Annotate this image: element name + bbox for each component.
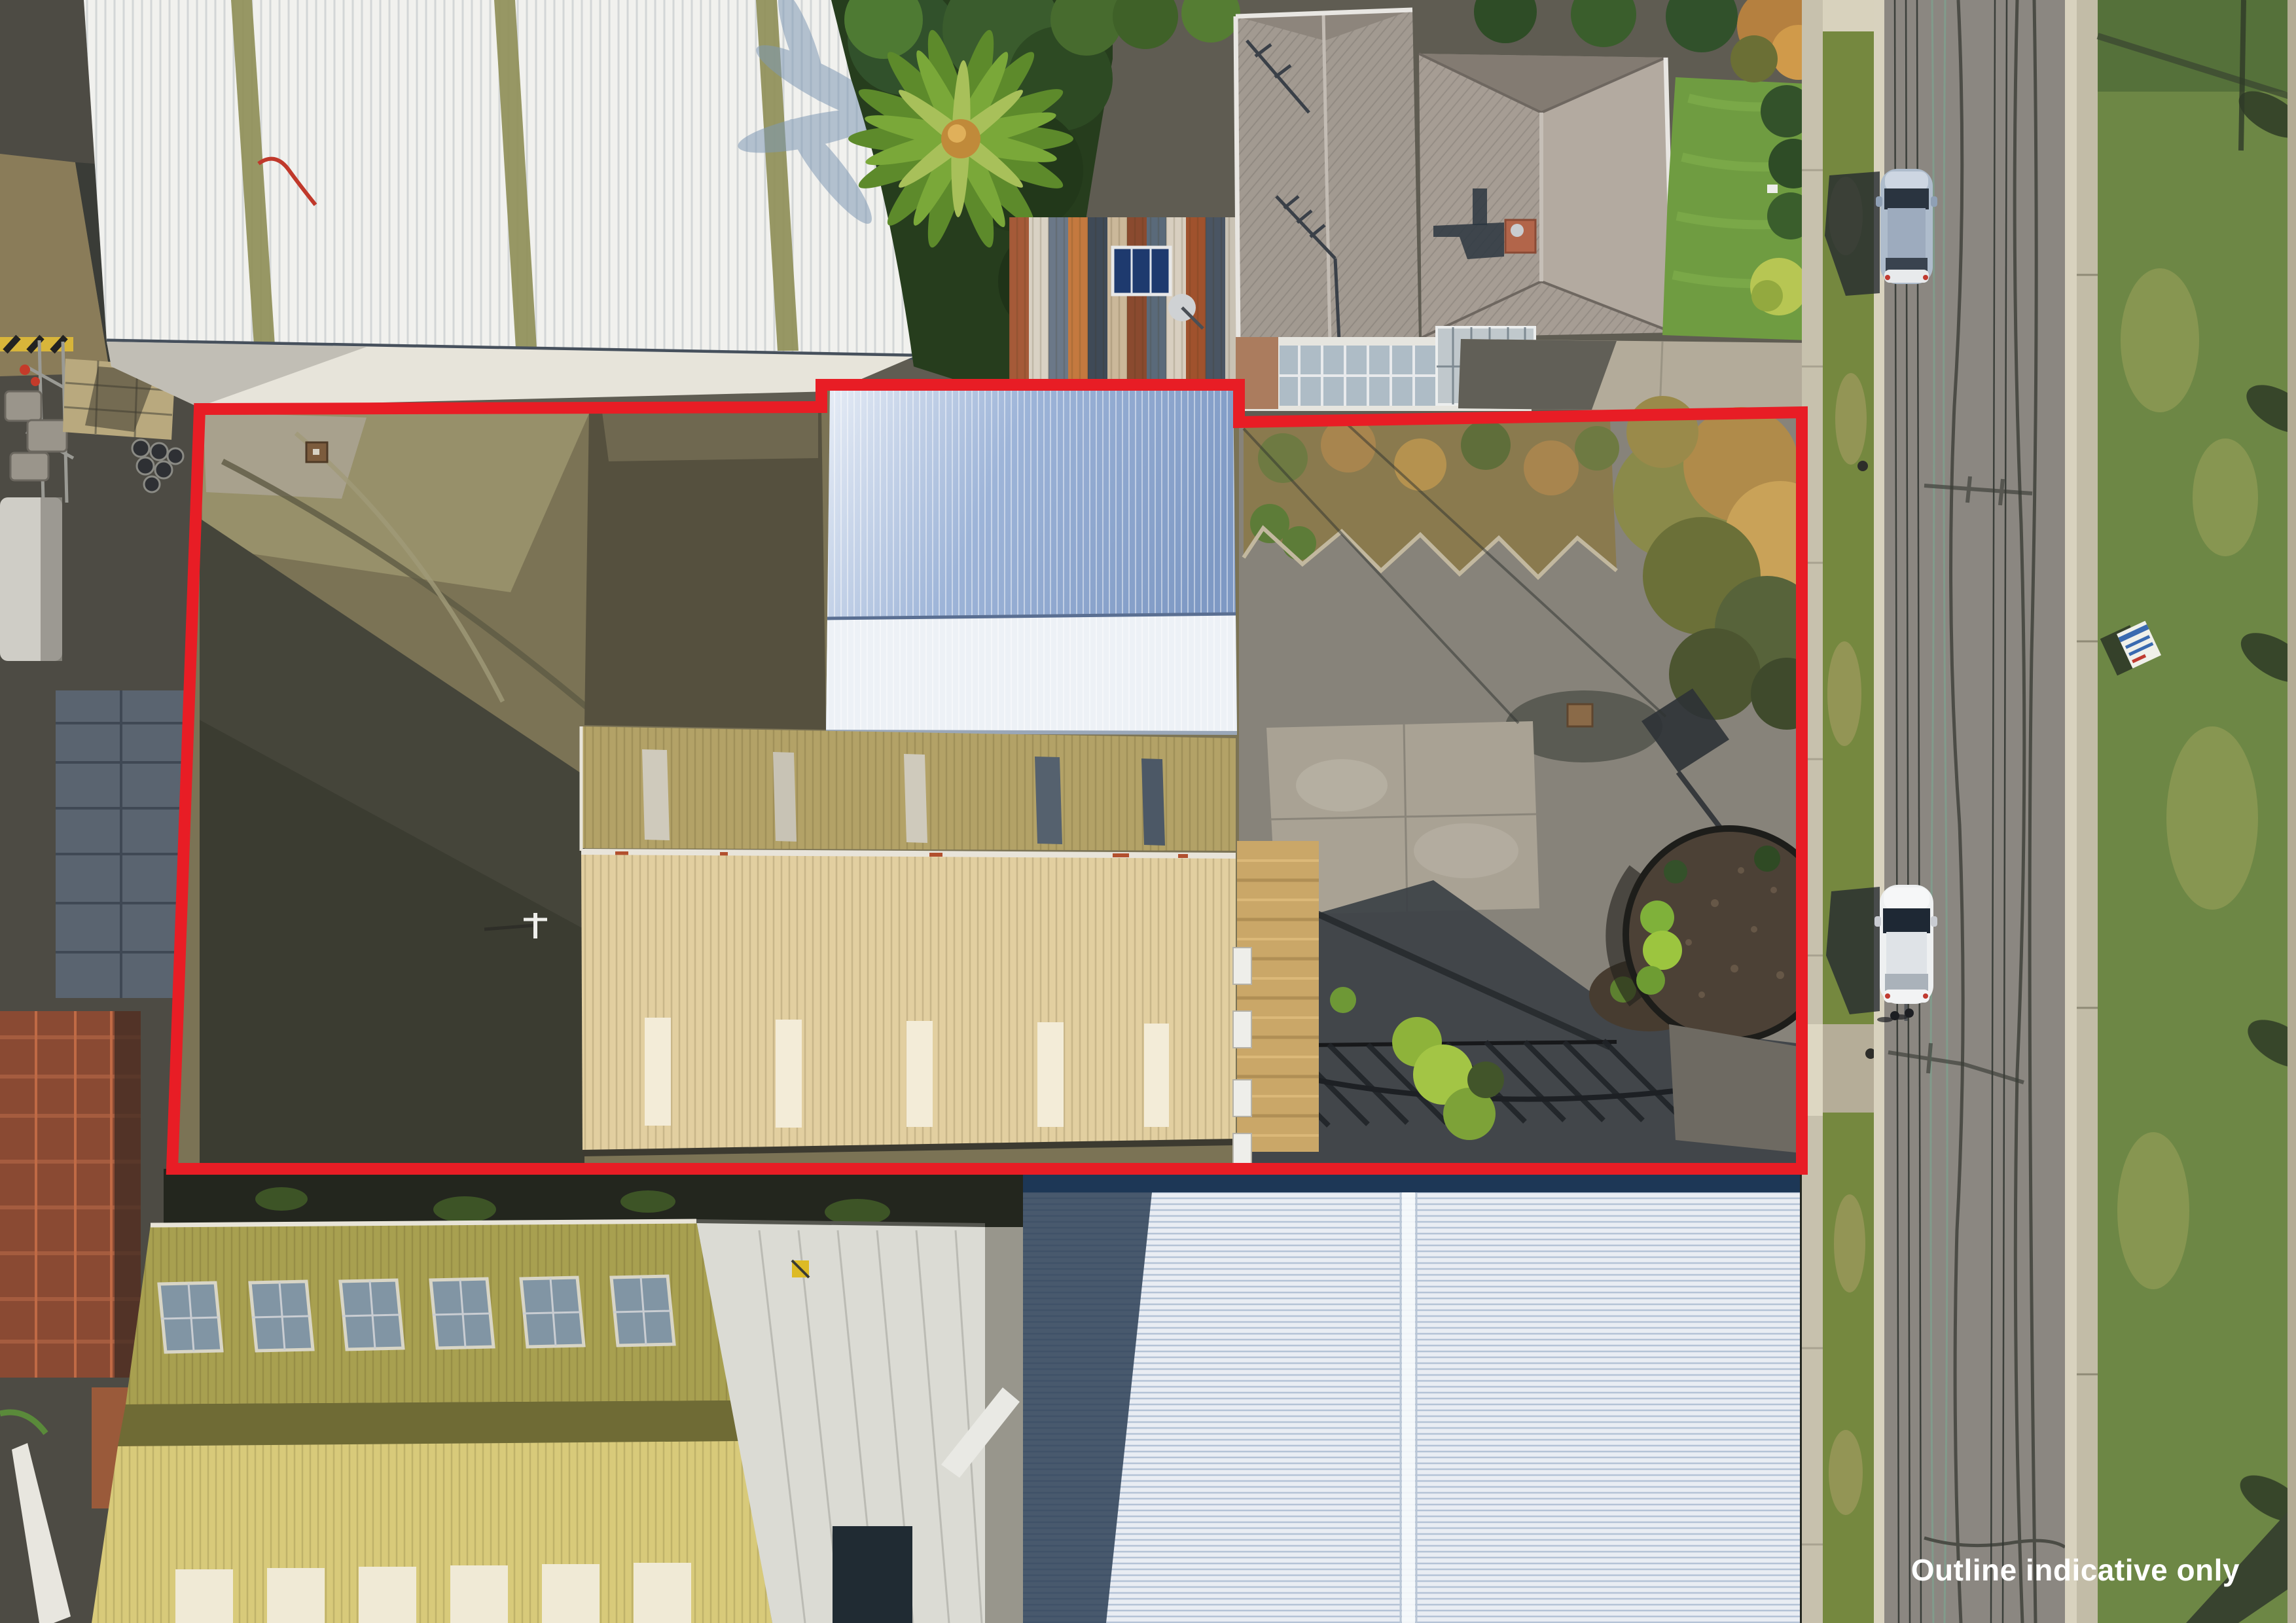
neighbour-house xyxy=(1236,10,1673,346)
rusty-shed xyxy=(1009,217,1249,385)
solar-panel xyxy=(1113,247,1170,294)
side-awning xyxy=(1233,841,1319,1166)
gravel-patch xyxy=(203,412,367,499)
mailbox xyxy=(1767,185,1778,193)
far-verge xyxy=(2065,0,2296,1623)
white-warehouse xyxy=(84,0,914,407)
yellow-warehouse xyxy=(92,1221,772,1623)
street-corridor xyxy=(1802,0,2065,1623)
power-pole xyxy=(1857,461,1868,471)
white-building-bottom xyxy=(696,1171,1813,1623)
outline-disclaimer-label: Outline indicative only xyxy=(1911,1552,2240,1588)
vehicle-crossing xyxy=(1823,1024,1875,1113)
doorway xyxy=(833,1526,912,1623)
tan-warehouse xyxy=(581,726,1236,1153)
blue-warehouse xyxy=(826,386,1237,733)
aerial-photo: Outline indicative only xyxy=(0,0,2296,1623)
aerial-scene xyxy=(0,0,2296,1623)
